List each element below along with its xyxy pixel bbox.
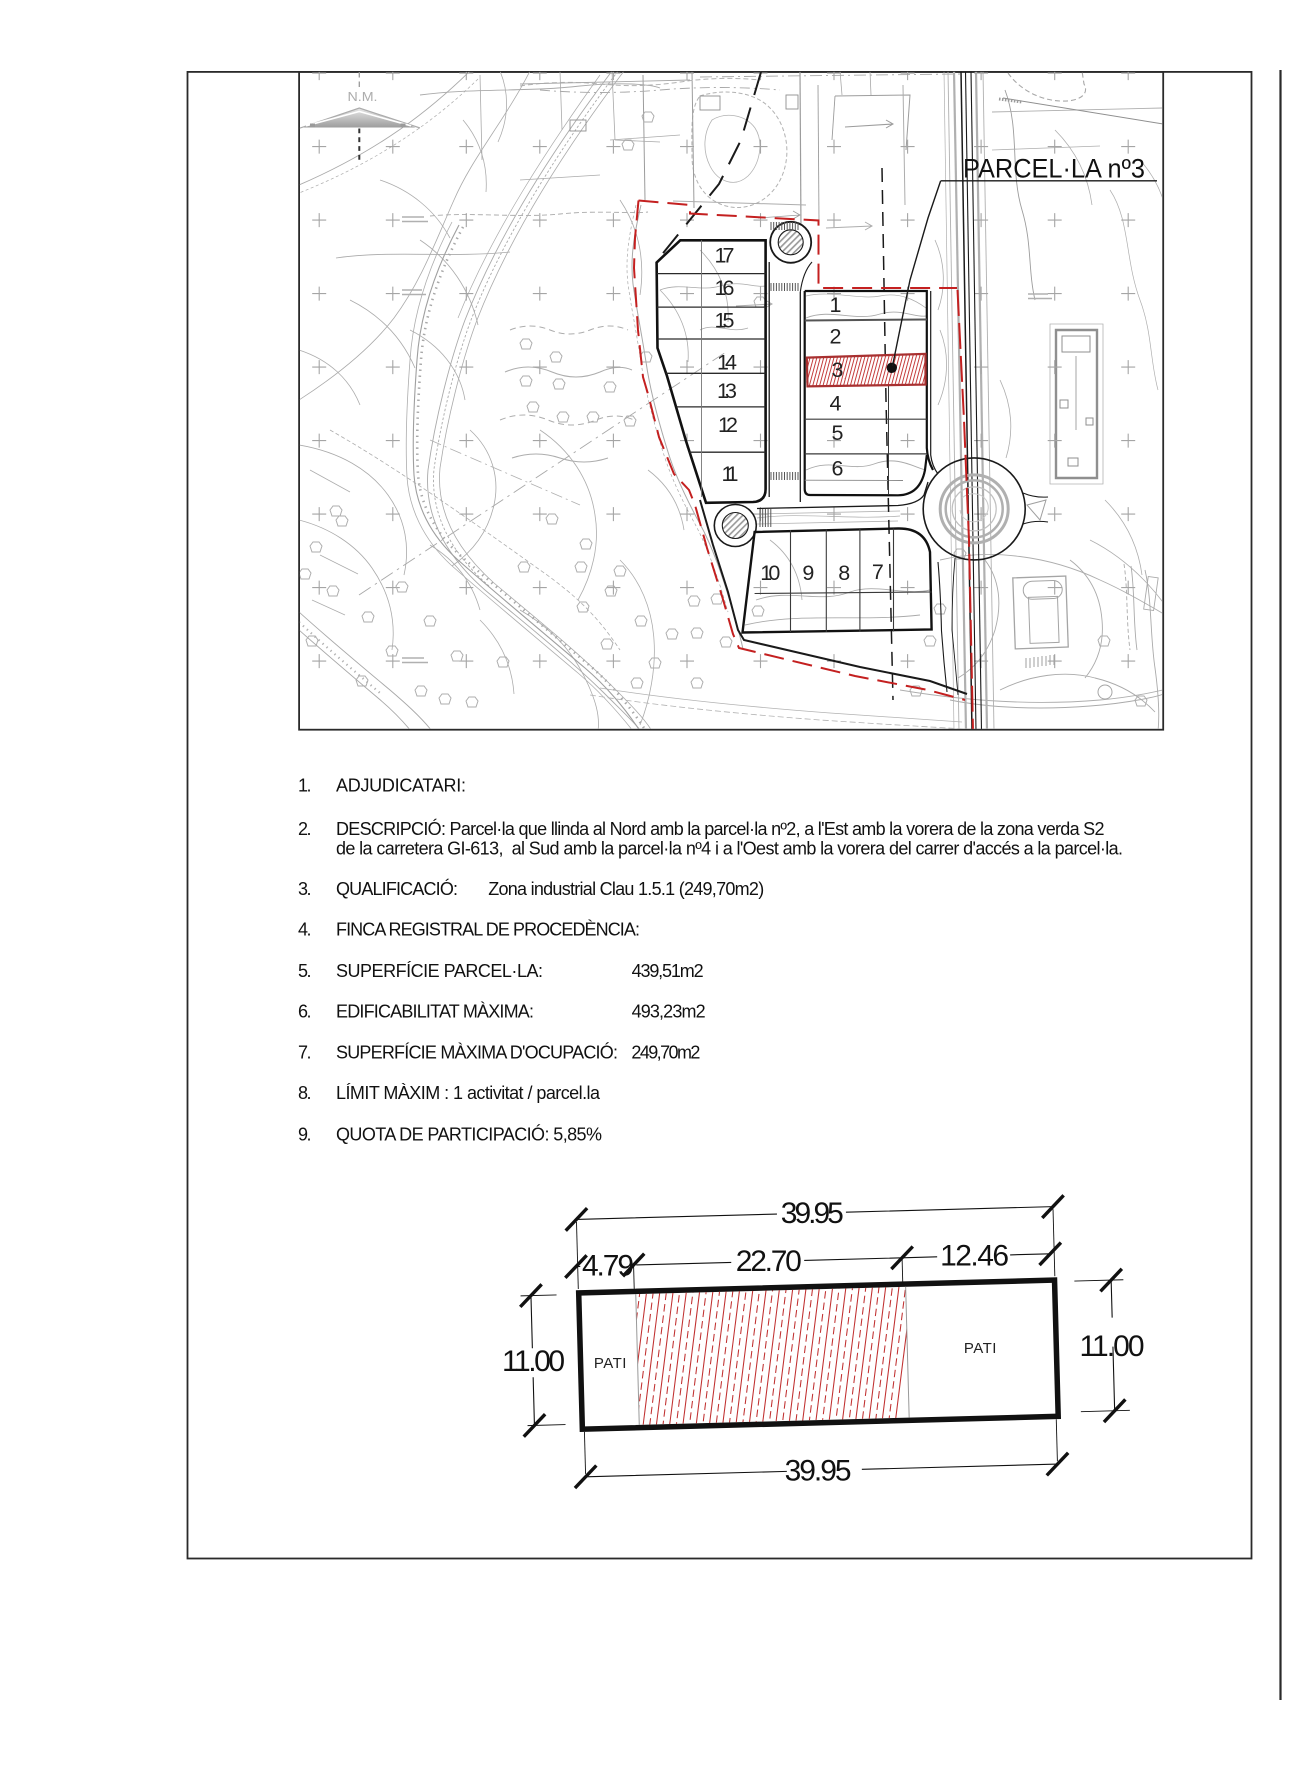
svg-text:1.: 1. [298,775,312,795]
svg-text:4: 4 [830,392,842,416]
svg-text:Zona industrial Clau 1.5.1 (24: Zona industrial Clau 1.5.1 (249,70m2) [488,879,764,899]
svg-text:QUOTA DE PARTICIPACIÓ: 5,85%: QUOTA DE PARTICIPACIÓ: 5,85% [336,1123,602,1144]
svg-text:2.: 2. [298,819,312,839]
svg-text:3.: 3. [298,879,312,899]
svg-text:4.: 4. [298,920,312,940]
svg-text:5: 5 [832,421,844,445]
svg-text:9: 9 [802,561,814,585]
svg-text:493,23m2: 493,23m2 [632,1001,706,1021]
svg-text:2: 2 [830,325,842,349]
svg-text:7.: 7. [298,1043,312,1063]
svg-text:8.: 8. [298,1083,312,1103]
svg-text:439,51m2: 439,51m2 [632,961,704,981]
svg-text:39.95: 39.95 [785,1454,852,1487]
svg-text:5.: 5. [298,961,312,981]
svg-text:6: 6 [832,457,844,481]
svg-text:N.M.: N.M. [348,90,378,104]
svg-text:SUPERFÍCIE MÀXIMA D'OCUPACIÓ:: SUPERFÍCIE MÀXIMA D'OCUPACIÓ: [336,1042,618,1063]
svg-text:249,70m2: 249,70m2 [631,1043,700,1063]
svg-text:15: 15 [715,309,735,333]
svg-text:6.: 6. [298,1001,312,1021]
svg-text:11: 11 [722,462,739,486]
svg-text:1: 1 [830,293,842,317]
svg-text:4.79: 4.79 [582,1250,634,1283]
svg-text:8: 8 [838,561,850,585]
svg-text:22.70: 22.70 [736,1245,802,1278]
svg-text:13: 13 [717,379,737,403]
svg-text:PATI: PATI [594,1355,627,1372]
svg-text:12: 12 [718,413,738,437]
svg-text:ADJUDICATARI:: ADJUDICATARI: [336,775,466,795]
svg-text:SUPERFÍCIE PARCEL·LA:: SUPERFÍCIE PARCEL·LA: [336,961,543,981]
svg-text:de la carretera GI-613, al Su: de la carretera GI-613, al Sud amb la pa… [336,839,1123,859]
svg-text:PATI: PATI [964,1340,997,1357]
svg-text:QUALIFICACIÓ:: QUALIFICACIÓ: [336,878,458,899]
svg-text:LÍMIT MÀXIM : 1 activitat / pa: LÍMIT MÀXIM : 1 activitat / parcel.la [336,1083,601,1103]
svg-text:DESCRIPCIÓ: Parcel·la que llin: DESCRIPCIÓ: Parcel·la que llinda al Nord… [336,818,1105,839]
svg-text:EDIFICABILITAT MÀXIMA:: EDIFICABILITAT MÀXIMA: [336,1001,534,1021]
svg-text:16: 16 [715,276,735,300]
svg-text:17: 17 [715,244,735,268]
svg-text:9.: 9. [298,1124,312,1144]
svg-text:14: 14 [717,351,737,375]
svg-text:10: 10 [760,561,780,585]
svg-text:FINCA REGISTRAL DE PROCEDÈNCIA: FINCA REGISTRAL DE PROCEDÈNCIA: [336,920,640,940]
svg-text:3: 3 [832,358,844,382]
svg-text:39.95: 39.95 [781,1197,844,1230]
svg-text:12.46: 12.46 [940,1240,1009,1273]
svg-text:11.00: 11.00 [502,1345,565,1378]
svg-text:7: 7 [872,560,884,584]
svg-text:PARCEL·LA nº3: PARCEL·LA nº3 [963,153,1145,183]
svg-text:11.00: 11.00 [1080,1330,1145,1363]
